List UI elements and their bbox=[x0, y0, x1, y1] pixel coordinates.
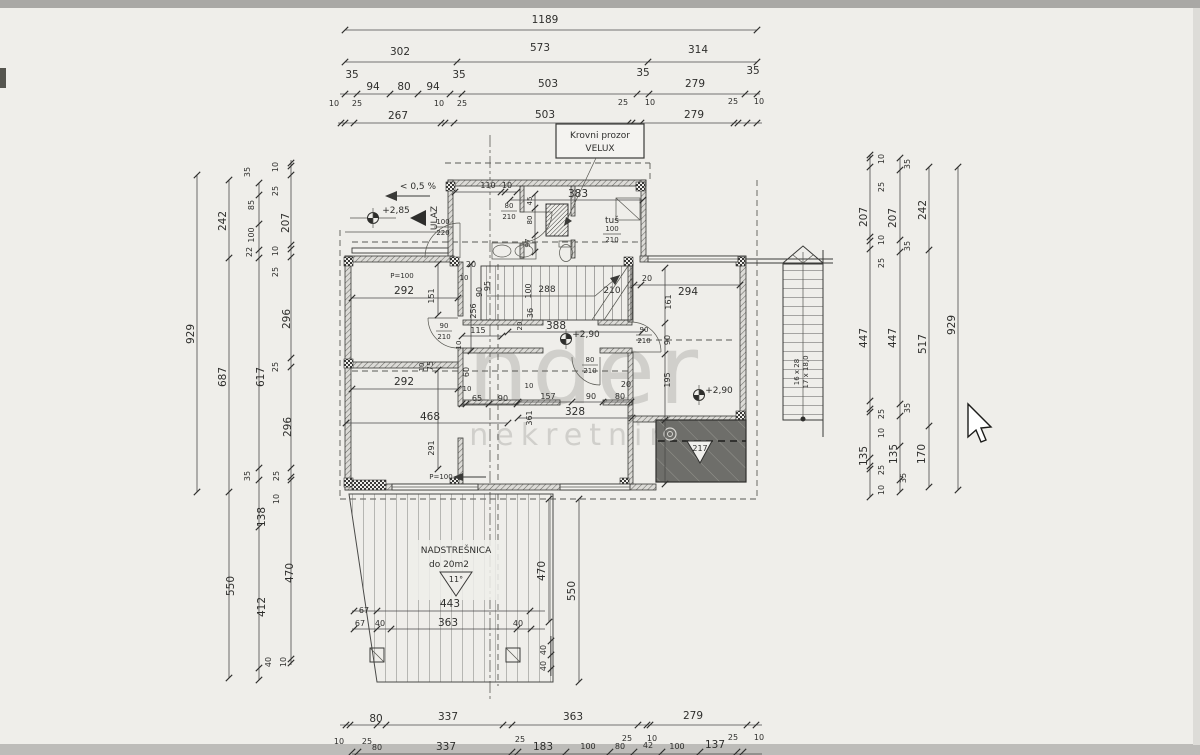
dim-label: 35 bbox=[243, 167, 252, 177]
dim-label: 94 bbox=[426, 81, 440, 93]
floorplan-viewer: { "colors": {"paper":"#efeeea","ink":"#3… bbox=[0, 0, 1200, 755]
dim-label: 363 bbox=[563, 711, 583, 723]
canopy: NADSTREŠNICA do 20m2 11° 67 443 67 40 36… bbox=[349, 494, 582, 685]
dim-label: 100 bbox=[580, 742, 595, 751]
dim-label: 90 bbox=[475, 287, 484, 297]
dim-label: 94 bbox=[366, 81, 380, 93]
dim-label: 10 bbox=[877, 235, 886, 245]
dim-label: 95 bbox=[483, 281, 492, 291]
door-height: 210 bbox=[605, 236, 618, 244]
dim-label: 337 bbox=[438, 711, 458, 723]
dim-label: 242 bbox=[217, 211, 229, 231]
dim-label: 10 bbox=[502, 181, 512, 190]
dim-label: 550 bbox=[566, 581, 578, 601]
dim-label: 20 bbox=[466, 260, 476, 269]
dim-label: 279 bbox=[684, 109, 704, 121]
interior-stairs: 288 210 bbox=[481, 266, 632, 320]
dim-label: 80 bbox=[397, 81, 410, 93]
dim-label: 161 bbox=[664, 294, 673, 309]
dim-label: 687 bbox=[217, 367, 229, 387]
dim-label: 22 bbox=[245, 247, 254, 257]
dim-label: 617 bbox=[255, 367, 267, 387]
dim-label: 10 bbox=[877, 428, 886, 438]
dim-label: 115 bbox=[470, 326, 485, 335]
level-label: +2,90 bbox=[572, 330, 600, 340]
dim-label: 383 bbox=[568, 188, 588, 200]
dim-label: 20 bbox=[621, 380, 631, 389]
dim-label: 100 bbox=[524, 283, 533, 298]
dim-label: 35 bbox=[903, 159, 912, 169]
dim-label: 25 bbox=[271, 186, 280, 196]
door-width: 80 bbox=[505, 202, 514, 210]
dim-label: 296 bbox=[282, 417, 294, 437]
entrance-label: ULAZ bbox=[430, 206, 440, 230]
dim-label: 929 bbox=[946, 315, 958, 335]
dim-label: 302 bbox=[390, 46, 410, 58]
dim-label: 10 bbox=[877, 154, 886, 164]
dim-label: 929 bbox=[185, 324, 197, 344]
dim-label: 35 bbox=[903, 241, 912, 251]
dim-label: 90 bbox=[498, 394, 508, 403]
dim-label: 10 bbox=[877, 485, 886, 495]
dim-label: 20 bbox=[516, 322, 524, 331]
door-height: 210 bbox=[583, 367, 596, 375]
dim-label: 75 bbox=[426, 361, 435, 371]
dim-label: 35 bbox=[243, 471, 252, 481]
dim-label: 10 bbox=[418, 363, 426, 372]
canopy-label: NADSTREŠNICA bbox=[421, 544, 492, 556]
door-width: 100 bbox=[605, 225, 618, 233]
dim-label: 503 bbox=[535, 109, 555, 121]
level-label: +2,90 bbox=[705, 386, 733, 396]
dim-label: 10 bbox=[455, 341, 463, 350]
dim-label: 468 bbox=[420, 411, 440, 423]
dim-label: 363 bbox=[438, 617, 458, 629]
dim-label: 151 bbox=[427, 288, 436, 303]
dim-label: 10 bbox=[334, 737, 344, 746]
dim-label: 10 bbox=[271, 246, 280, 256]
dim-label: 170 bbox=[916, 444, 928, 464]
p100-label: P=100 bbox=[429, 473, 452, 481]
dim-label: 443 bbox=[440, 598, 460, 610]
dim-label: 42 bbox=[643, 741, 653, 750]
dim-label: 470 bbox=[284, 563, 296, 583]
roof-window bbox=[546, 204, 568, 236]
dim-label: 183 bbox=[533, 741, 553, 753]
dim-label: 517 bbox=[917, 334, 929, 354]
dim-label: 35 bbox=[746, 65, 759, 77]
dim-label: 10 bbox=[272, 494, 281, 504]
dim-label: 207 bbox=[887, 208, 899, 228]
dim-label: 100 bbox=[247, 227, 256, 242]
dim-label: 80 bbox=[615, 392, 625, 401]
dim-label: 1189 bbox=[532, 14, 559, 26]
dim-label: 10 bbox=[434, 99, 444, 108]
dim-label: 110 bbox=[480, 181, 495, 190]
dim-label: 35 bbox=[345, 69, 358, 81]
photo-artifact bbox=[0, 68, 6, 88]
door-width: 80 bbox=[586, 356, 595, 364]
dim-label: 40 bbox=[375, 619, 385, 628]
canopy-area-label: do 20m2 bbox=[429, 560, 469, 570]
dim-label: 25 bbox=[515, 735, 525, 744]
dim-label: 90 bbox=[663, 335, 672, 345]
dim-label: 550 bbox=[225, 576, 237, 596]
dim-label: 256 bbox=[469, 303, 478, 318]
terrace-level-label: 217 bbox=[692, 444, 707, 453]
canopy-slope-label: 11° bbox=[449, 575, 463, 584]
dim-label: 35 bbox=[899, 473, 908, 483]
dim-label: 25 bbox=[271, 267, 280, 277]
dim-label: 25 bbox=[362, 737, 372, 746]
dim-label: 25 bbox=[271, 362, 280, 372]
dim-label: 85 bbox=[247, 200, 256, 210]
dim-label: 207 bbox=[858, 207, 870, 227]
dim-label: 25 bbox=[877, 182, 886, 192]
dim-label: 279 bbox=[685, 78, 705, 90]
dim-label: 65 bbox=[472, 394, 482, 403]
door-height: 210 bbox=[637, 337, 650, 345]
dim-label: 470 bbox=[536, 561, 548, 581]
dim-label: 267 bbox=[388, 110, 408, 122]
dim-label: 412 bbox=[256, 597, 268, 617]
dim-label: 328 bbox=[565, 406, 585, 418]
dim-label: 25 bbox=[352, 99, 362, 108]
dim-label: 10 bbox=[754, 97, 764, 106]
dim-label: 573 bbox=[530, 42, 550, 54]
terrace: 217 bbox=[656, 420, 746, 482]
dim-label: 292 bbox=[394, 376, 414, 388]
dim-label: 157 bbox=[540, 392, 555, 401]
dim-label: 447 bbox=[887, 328, 899, 348]
dim-label: 337 bbox=[436, 741, 456, 753]
dim-label: 80 bbox=[615, 742, 625, 751]
dim-label: 60 bbox=[462, 367, 471, 377]
dim-label: 10 bbox=[463, 385, 472, 393]
dim-label: 25 bbox=[877, 409, 886, 419]
dim-label: 135 bbox=[888, 444, 900, 464]
dim-label: 447 bbox=[858, 328, 870, 348]
dim-label: 195 bbox=[663, 372, 672, 387]
dim-label: 67 bbox=[355, 619, 365, 628]
dim-label: 40 bbox=[264, 657, 273, 667]
level-label: +2,85 bbox=[382, 206, 410, 216]
dim-label: 25 bbox=[272, 471, 281, 481]
dim-label: 80 bbox=[369, 713, 382, 725]
dim-label: 10 bbox=[754, 733, 764, 742]
stair-start-dot bbox=[801, 417, 806, 422]
dim-label: 100 bbox=[669, 742, 684, 751]
dim-label: 45 bbox=[526, 197, 534, 206]
dim-label: 25 bbox=[877, 258, 886, 268]
dim-label: 10 bbox=[279, 657, 288, 667]
dim-label: 25 bbox=[618, 98, 628, 107]
dim-label: 388 bbox=[546, 320, 566, 332]
door-width: 90 bbox=[440, 322, 449, 330]
velux-label-line2: VELUX bbox=[585, 144, 614, 154]
dim-label: 40 bbox=[539, 661, 548, 671]
dim-label: 90 bbox=[586, 392, 596, 401]
room-label-tus: tuš bbox=[605, 215, 619, 226]
dim-label: 242 bbox=[917, 200, 929, 220]
dim-label: 314 bbox=[688, 44, 708, 56]
dim-label: 25 bbox=[877, 465, 886, 475]
velux-label-line1: Krovni prozor bbox=[570, 131, 630, 141]
dim-label: 361 bbox=[525, 410, 534, 425]
p100-label: P=100 bbox=[390, 272, 413, 280]
dim-label: 67 bbox=[359, 606, 369, 615]
stair-length-label: 288 bbox=[538, 285, 555, 295]
dim-label: 80 bbox=[526, 216, 534, 225]
dim-label: 97 bbox=[524, 239, 532, 248]
dim-label: 35 bbox=[636, 67, 649, 79]
stair-height-label: 210 bbox=[603, 286, 620, 296]
dim-label: 25 bbox=[728, 97, 738, 106]
dim-label: 10 bbox=[645, 98, 655, 107]
dim-label: 10 bbox=[271, 162, 280, 172]
dim-label: 10 bbox=[460, 274, 469, 282]
dim-label: 25 bbox=[457, 99, 467, 108]
door-height: 210 bbox=[502, 213, 515, 221]
plan-canvas: nder nekretnine 1189 302 573 314 35 94 8… bbox=[0, 0, 1200, 755]
slope-label: < 0,5 % bbox=[400, 182, 437, 192]
stair-note: 17 x 18,0 bbox=[802, 355, 810, 388]
stair-note: 16 x 28 bbox=[793, 359, 801, 385]
dim-label: 80 bbox=[372, 743, 382, 752]
dim-label: 137 bbox=[705, 739, 725, 751]
dim-label: 35 bbox=[903, 403, 912, 413]
dim-label: 20 bbox=[642, 274, 652, 283]
door-height: 210 bbox=[437, 333, 450, 341]
terrace-fixture-icon bbox=[664, 428, 676, 440]
dim-label: 25 bbox=[728, 733, 738, 742]
dim-label: 207 bbox=[280, 213, 292, 233]
door-width: 90 bbox=[640, 326, 649, 334]
dim-label: 294 bbox=[678, 286, 698, 298]
dim-label: 292 bbox=[394, 285, 414, 297]
dim-label: 503 bbox=[538, 78, 558, 90]
masonry-sill bbox=[352, 480, 386, 490]
dim-label: 279 bbox=[683, 710, 703, 722]
dim-label: 35 bbox=[452, 69, 465, 81]
dim-label: 10 bbox=[525, 382, 534, 390]
dim-label: 10 bbox=[329, 99, 339, 108]
dim-label: 40 bbox=[513, 619, 523, 628]
dim-label: 40 bbox=[539, 645, 548, 655]
dim-label: 291 bbox=[427, 440, 436, 455]
dim-label: 138 bbox=[256, 507, 268, 527]
dim-label: 135 bbox=[858, 446, 870, 466]
dim-label: 296 bbox=[281, 309, 293, 329]
dim-label: 36 bbox=[526, 308, 535, 318]
